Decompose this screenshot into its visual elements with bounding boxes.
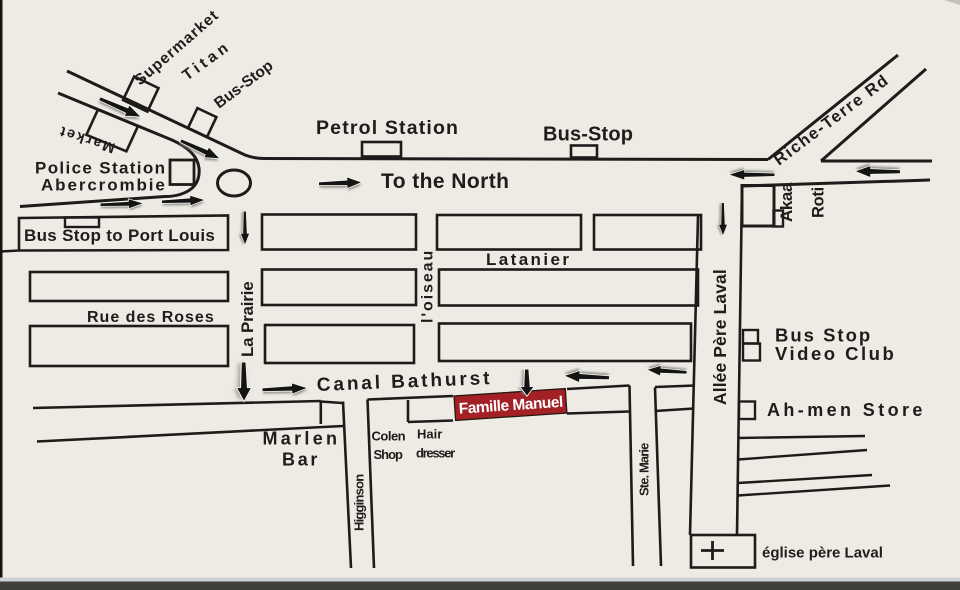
svg-text:Video Club: Video Club (775, 343, 896, 364)
svg-text:Roti: Roti (810, 187, 828, 218)
svg-text:Ste. Marie: Ste. Marie (637, 443, 652, 496)
svg-text:dresser: dresser (416, 446, 455, 461)
svg-text:Abercrombie: Abercrombie (41, 176, 167, 195)
svg-text:Rue des Roses: Rue des Roses (87, 309, 215, 326)
svg-text:Colen: Colen (372, 429, 406, 444)
svg-text:La Prairie: La Prairie (238, 282, 257, 358)
svg-text:Shop: Shop (374, 447, 404, 462)
svg-text:Bar: Bar (282, 450, 320, 470)
svg-text:Petrol Station: Petrol Station (316, 117, 459, 139)
svg-text:l'oiseau: l'oiseau (420, 249, 437, 323)
svg-text:Bus Stop to Port Louis: Bus Stop to Port Louis (24, 226, 215, 245)
svg-text:Higginson: Higginson (352, 474, 367, 531)
svg-text:Allée Père Laval: Allée Père Laval (710, 269, 730, 405)
svg-text:Hair: Hair (417, 427, 442, 442)
svg-text:To the North: To the North (381, 170, 509, 193)
svg-text:Ah-men Store: Ah-men Store (767, 400, 926, 420)
svg-text:Bus-Stop: Bus-Stop (543, 124, 633, 146)
svg-text:église père Laval: église père Laval (762, 545, 883, 562)
svg-text:Latanier: Latanier (486, 250, 571, 269)
svg-text:Akaa: Akaa (777, 182, 796, 222)
svg-text:Marlen: Marlen (263, 429, 341, 449)
